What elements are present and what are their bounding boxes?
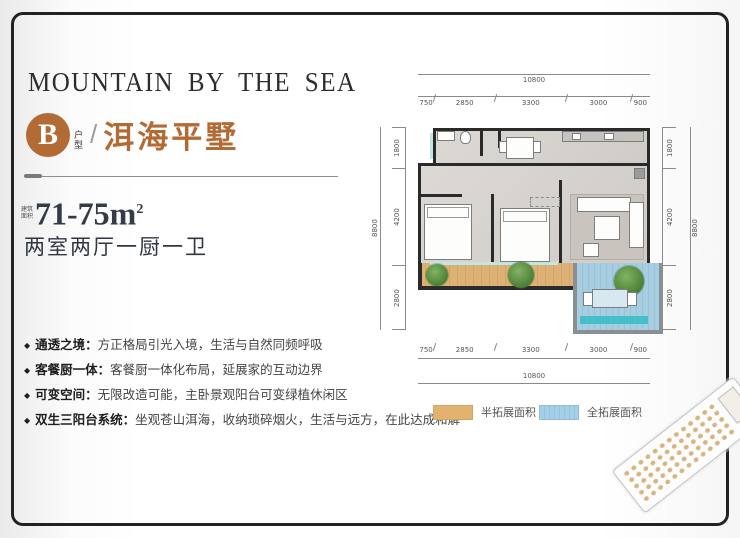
area-superscript: 2 [136,202,143,217]
window-strip [430,133,433,159]
tree-icon [426,264,448,286]
bathroom-sink-icon [437,131,455,141]
bathroom-wall [480,128,483,156]
legend-item-full-expand: 全拓展面积 [539,404,642,420]
feature-item: ◆双生三阳台系统：坐观苍山洱海，收纳琐碎烟火，生活与远方，在此达成和解 [24,413,369,428]
dim-tick [662,329,676,330]
slash-separator: / [90,119,97,150]
diamond-bullet-icon: ◆ [24,416,30,425]
dim-segment: 4200 [662,168,676,266]
diamond-bullet-icon: ◆ [24,366,30,375]
dim-segment: 1800 [662,127,676,169]
area-prefix-label: 建筑面积 [21,207,35,221]
feature-text: 坐观苍山洱海，收纳琐碎烟火，生活与远方，在此达成和解 [135,413,460,427]
feature-item: ◆可变空间：无限改造可能，主卧景观阳台可变绿植休闲区 [24,388,369,403]
feature-label: 可变空间： [35,388,98,402]
bedroom-divider-wall [491,194,494,263]
dim-segment: 3000 [566,96,630,109]
bed-icon [424,204,472,260]
unit-type-badge: B [26,113,70,157]
dim-segment: 900 [631,346,650,359]
feature-label: 客餐厨一体： [35,363,110,377]
dim-left-segments: 1800 4200 2800 [392,127,406,330]
sliding-door-strip [430,262,558,265]
dim-line [380,127,381,330]
brochure-page: MOUNTAIN BY THE SEA B 户型 / 洱海平墅 建筑面积 71-… [0,0,740,538]
feature-item: ◆客餐厨一体：客餐厨一体化布局，延展家的互动边界 [24,363,369,378]
feature-label: 通透之境： [35,338,98,352]
dim-segment: 4200 [392,168,406,266]
unit-type-caption: 户型 [74,130,86,150]
dim-line [418,74,650,75]
stove-icon [604,133,614,140]
dim-segment: 750 [418,96,434,109]
dim-label: 8800 [371,127,379,330]
tree-icon [508,262,534,288]
dim-top-segments: 750 2850 3300 3000 900 [418,96,650,108]
dim-label: 10800 [418,372,650,380]
coffee-table-icon [594,216,620,240]
sofa-side-icon [629,202,644,248]
dim-right-total: 8800 [684,127,696,330]
legend-swatch-tan [433,405,473,420]
legend-label: 半拓展面积 [481,404,536,420]
area-value: 71-75m2 [35,193,143,231]
sink-icon [572,133,581,140]
sofa-icon [577,197,631,212]
bed-icon [500,208,550,262]
diamond-bullet-icon: ◆ [24,341,30,350]
bedroom1-top-wall [418,194,462,197]
outdoor-chair-icon [627,292,637,306]
chair-icon [533,141,541,153]
dim-segment: 3300 [495,96,566,109]
dim-segment: 900 [631,96,650,109]
room-layout-text: 两室两厅一厨一卫 [24,231,208,261]
area-unit: m [110,196,137,232]
divider-line [24,176,338,177]
deck-outer-wall [418,286,573,290]
feature-list: ◆通透之境：方正格局引光入境，生活与自然同频呼吸 ◆客餐厨一体：客餐厨一体化布局… [24,338,369,438]
terrace-planter-strip [580,316,648,324]
brand-logo: MOUNTAIN BY THE SEA [28,68,357,99]
dim-label: 10800 [418,76,650,84]
area-number: 71-75 [35,196,110,232]
deck-side-wall [418,263,422,290]
chair-icon [499,141,507,153]
legend-swatch-blue [539,405,579,420]
dim-segment: 2850 [434,96,495,109]
dim-segment: 2800 [662,265,676,331]
feature-text: 方正格局引光入境，生活与自然同频呼吸 [98,338,323,352]
pillow-icon [427,207,469,218]
dim-segment: 3300 [495,346,566,359]
legend-item-semi-expand: 半拓展面积 [433,404,536,420]
dim-segment: 2850 [434,346,495,359]
dim-bottom-segments: 750 2850 3300 3000 900 [418,346,650,358]
feature-item: ◆通透之境：方正格局引光入境，生活与自然同频呼吸 [24,338,369,353]
dim-label: 8800 [691,127,699,330]
dim-top-total: 10800 [418,74,650,86]
outdoor-chair-icon [583,292,593,306]
legend-label: 全拓展面积 [587,404,642,420]
dim-bottom-total: 10800 [418,371,650,383]
dim-line [418,383,650,384]
dim-left-total: 8800 [374,127,386,330]
unit-name: 洱海平墅 [103,112,239,157]
outdoor-table-icon [592,289,628,308]
armchair-icon [583,243,599,257]
pillow-icon [503,211,547,222]
diamond-bullet-icon: ◆ [24,391,30,400]
unit-title-row: B 户型 / 洱海平墅 [26,112,239,157]
toilet-icon [460,131,471,144]
dim-segment: 1800 [392,127,406,169]
livingroom-wall [559,180,562,263]
feature-label: 双生三阳台系统： [35,413,135,427]
feature-text: 无限改造可能，主卧景观阳台可变绿植休闲区 [98,388,348,402]
site-plan-keymap [612,376,740,513]
dim-right-segments: 1800 4200 2800 [662,127,676,330]
area-row: 建筑面积 71-75m2 [21,193,143,231]
dining-table-icon [506,137,534,159]
feature-text: 客餐厨一体化布局，延展家的互动边界 [110,363,323,377]
flue-box [634,168,645,179]
dim-segment: 3000 [566,346,630,359]
dim-segment: 750 [418,346,434,359]
closet-outline [530,197,560,207]
dim-tick [392,329,406,330]
dim-segment: 2800 [392,265,406,331]
